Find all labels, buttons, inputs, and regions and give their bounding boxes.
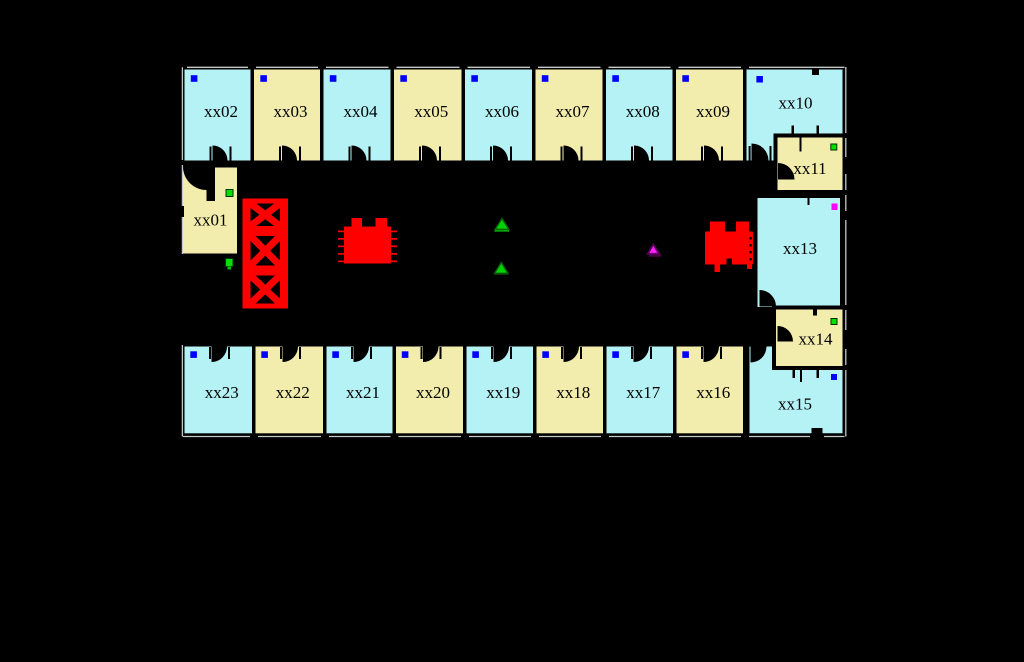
svg-text:xx15: xx15 <box>778 395 812 414</box>
svg-text:xx14: xx14 <box>799 330 834 349</box>
svg-text:xx09: xx09 <box>696 102 730 121</box>
svg-text:xx11: xx11 <box>793 159 826 178</box>
svg-text:xx02: xx02 <box>204 102 238 121</box>
svg-text:xx10: xx10 <box>779 94 813 113</box>
svg-text:xx08: xx08 <box>626 102 660 121</box>
svg-text:xx16: xx16 <box>696 383 730 402</box>
svg-text:xx17: xx17 <box>626 383 661 402</box>
svg-text:xx20: xx20 <box>416 383 450 402</box>
svg-text:xx01: xx01 <box>194 211 228 230</box>
svg-text:xx18: xx18 <box>556 383 590 402</box>
svg-text:xx07: xx07 <box>556 102 591 121</box>
svg-text:xx19: xx19 <box>486 383 520 402</box>
svg-text:xx13: xx13 <box>783 239 817 258</box>
svg-text:xx22: xx22 <box>276 383 310 402</box>
svg-text:xx03: xx03 <box>274 102 308 121</box>
svg-text:xx23: xx23 <box>205 383 239 402</box>
svg-text:xx05: xx05 <box>414 102 448 121</box>
svg-text:xx21: xx21 <box>346 383 380 402</box>
svg-text:xx06: xx06 <box>485 102 519 121</box>
svg-text:xx04: xx04 <box>344 102 379 121</box>
